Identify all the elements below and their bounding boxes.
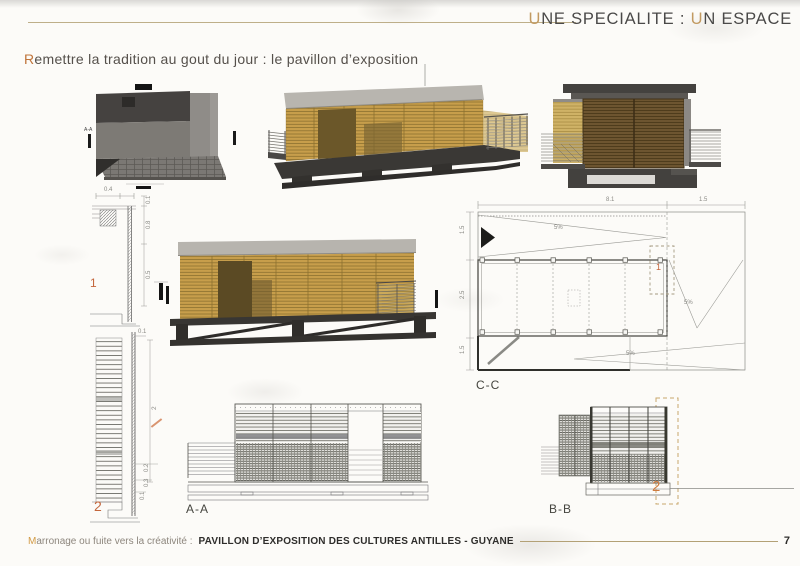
dim-label: 0.8 <box>146 221 152 229</box>
dim-label: 0.1 <box>138 329 146 335</box>
render-long-perspective-svg <box>268 80 530 192</box>
elevation-label: A-A <box>186 502 209 516</box>
dim-label: 0.4 <box>104 187 112 193</box>
plan-callout-1: 1 <box>656 262 661 272</box>
render-front-elevation <box>164 228 442 356</box>
footer-tagline: Marronage ou fuite vers la créativité : <box>28 536 193 547</box>
dim-label: 1.5 <box>699 197 707 203</box>
slope-label: 5% <box>626 351 635 357</box>
title-accent-1: U <box>529 10 542 28</box>
top-edge-shadow <box>0 0 800 8</box>
detail-section-2-svg <box>88 332 188 528</box>
header-rule <box>28 22 576 23</box>
title-part-2: N ESPACE <box>703 10 792 28</box>
slope-label: 5% <box>684 300 693 306</box>
render-long-perspective <box>268 80 530 192</box>
render-front-elevation-svg <box>164 228 442 356</box>
dim-label: 8.1 <box>606 197 614 203</box>
plan-cc-svg <box>456 196 756 396</box>
elevation-callout-2: 2 <box>652 478 660 495</box>
title-part-1: NE SPECIALITE : <box>541 10 690 28</box>
page-title: UNE SPECIALITE : UN ESPACE <box>529 10 793 29</box>
dim-label: 0.2 <box>144 464 150 472</box>
subtitle-text: emettre la tradition au gout du jour : l… <box>34 51 418 67</box>
dim-label: 0.3 <box>144 479 150 487</box>
page-subtitle: Remettre la tradition au gout du jour : … <box>24 51 418 67</box>
detail-number-1: 1 <box>90 276 97 290</box>
subtitle-accent: R <box>24 51 34 67</box>
plan-cc: 8.1 1.5 1.5 2.5 1.5 5% 5% 5% 1 C-C <box>456 196 756 396</box>
elevation-label: B-B <box>549 502 572 516</box>
page-footer: Marronage ou fuite vers la créativité : … <box>28 535 790 547</box>
elevation-aa: A-A <box>183 396 435 520</box>
elevation-bb: 2 B-B <box>538 396 800 522</box>
detail-number-2: 2 <box>94 498 102 514</box>
elevation-aa-svg <box>183 396 435 520</box>
portfolio-page: UNE SPECIALITE : UN ESPACE Remettre la t… <box>0 0 800 566</box>
dim-label: 2.5 <box>460 291 466 299</box>
render-roof-axon-svg <box>86 84 238 194</box>
dim-label: 0.1 <box>146 196 152 204</box>
dim-label: 2 <box>152 406 159 410</box>
render-roof-axon: A-A <box>86 84 238 194</box>
dim-label: 1.5 <box>460 226 466 234</box>
render-end-view <box>541 84 721 192</box>
elevation-bb-svg <box>538 396 800 522</box>
detail-section-2: 0.1 2 0.2 0.3 0.1 2 <box>88 332 188 528</box>
render-end-view-svg <box>541 84 721 192</box>
footer-tagline-text: arronage ou fuite vers la créativité : <box>36 536 192 547</box>
footer-rule <box>520 541 778 542</box>
footer-project-title: PAVILLON D’EXPOSITION DES CULTURES ANTIL… <box>199 536 514 547</box>
dim-label: 0.5 <box>146 271 152 279</box>
dim-label: 0.1 <box>140 492 146 500</box>
dim-label: 1.5 <box>460 346 466 354</box>
plan-label: C-C <box>476 378 500 392</box>
title-accent-2: U <box>691 10 704 28</box>
slope-label: 5% <box>554 225 563 231</box>
section-mark-label: A-A <box>84 128 92 133</box>
page-number: 7 <box>784 535 790 547</box>
